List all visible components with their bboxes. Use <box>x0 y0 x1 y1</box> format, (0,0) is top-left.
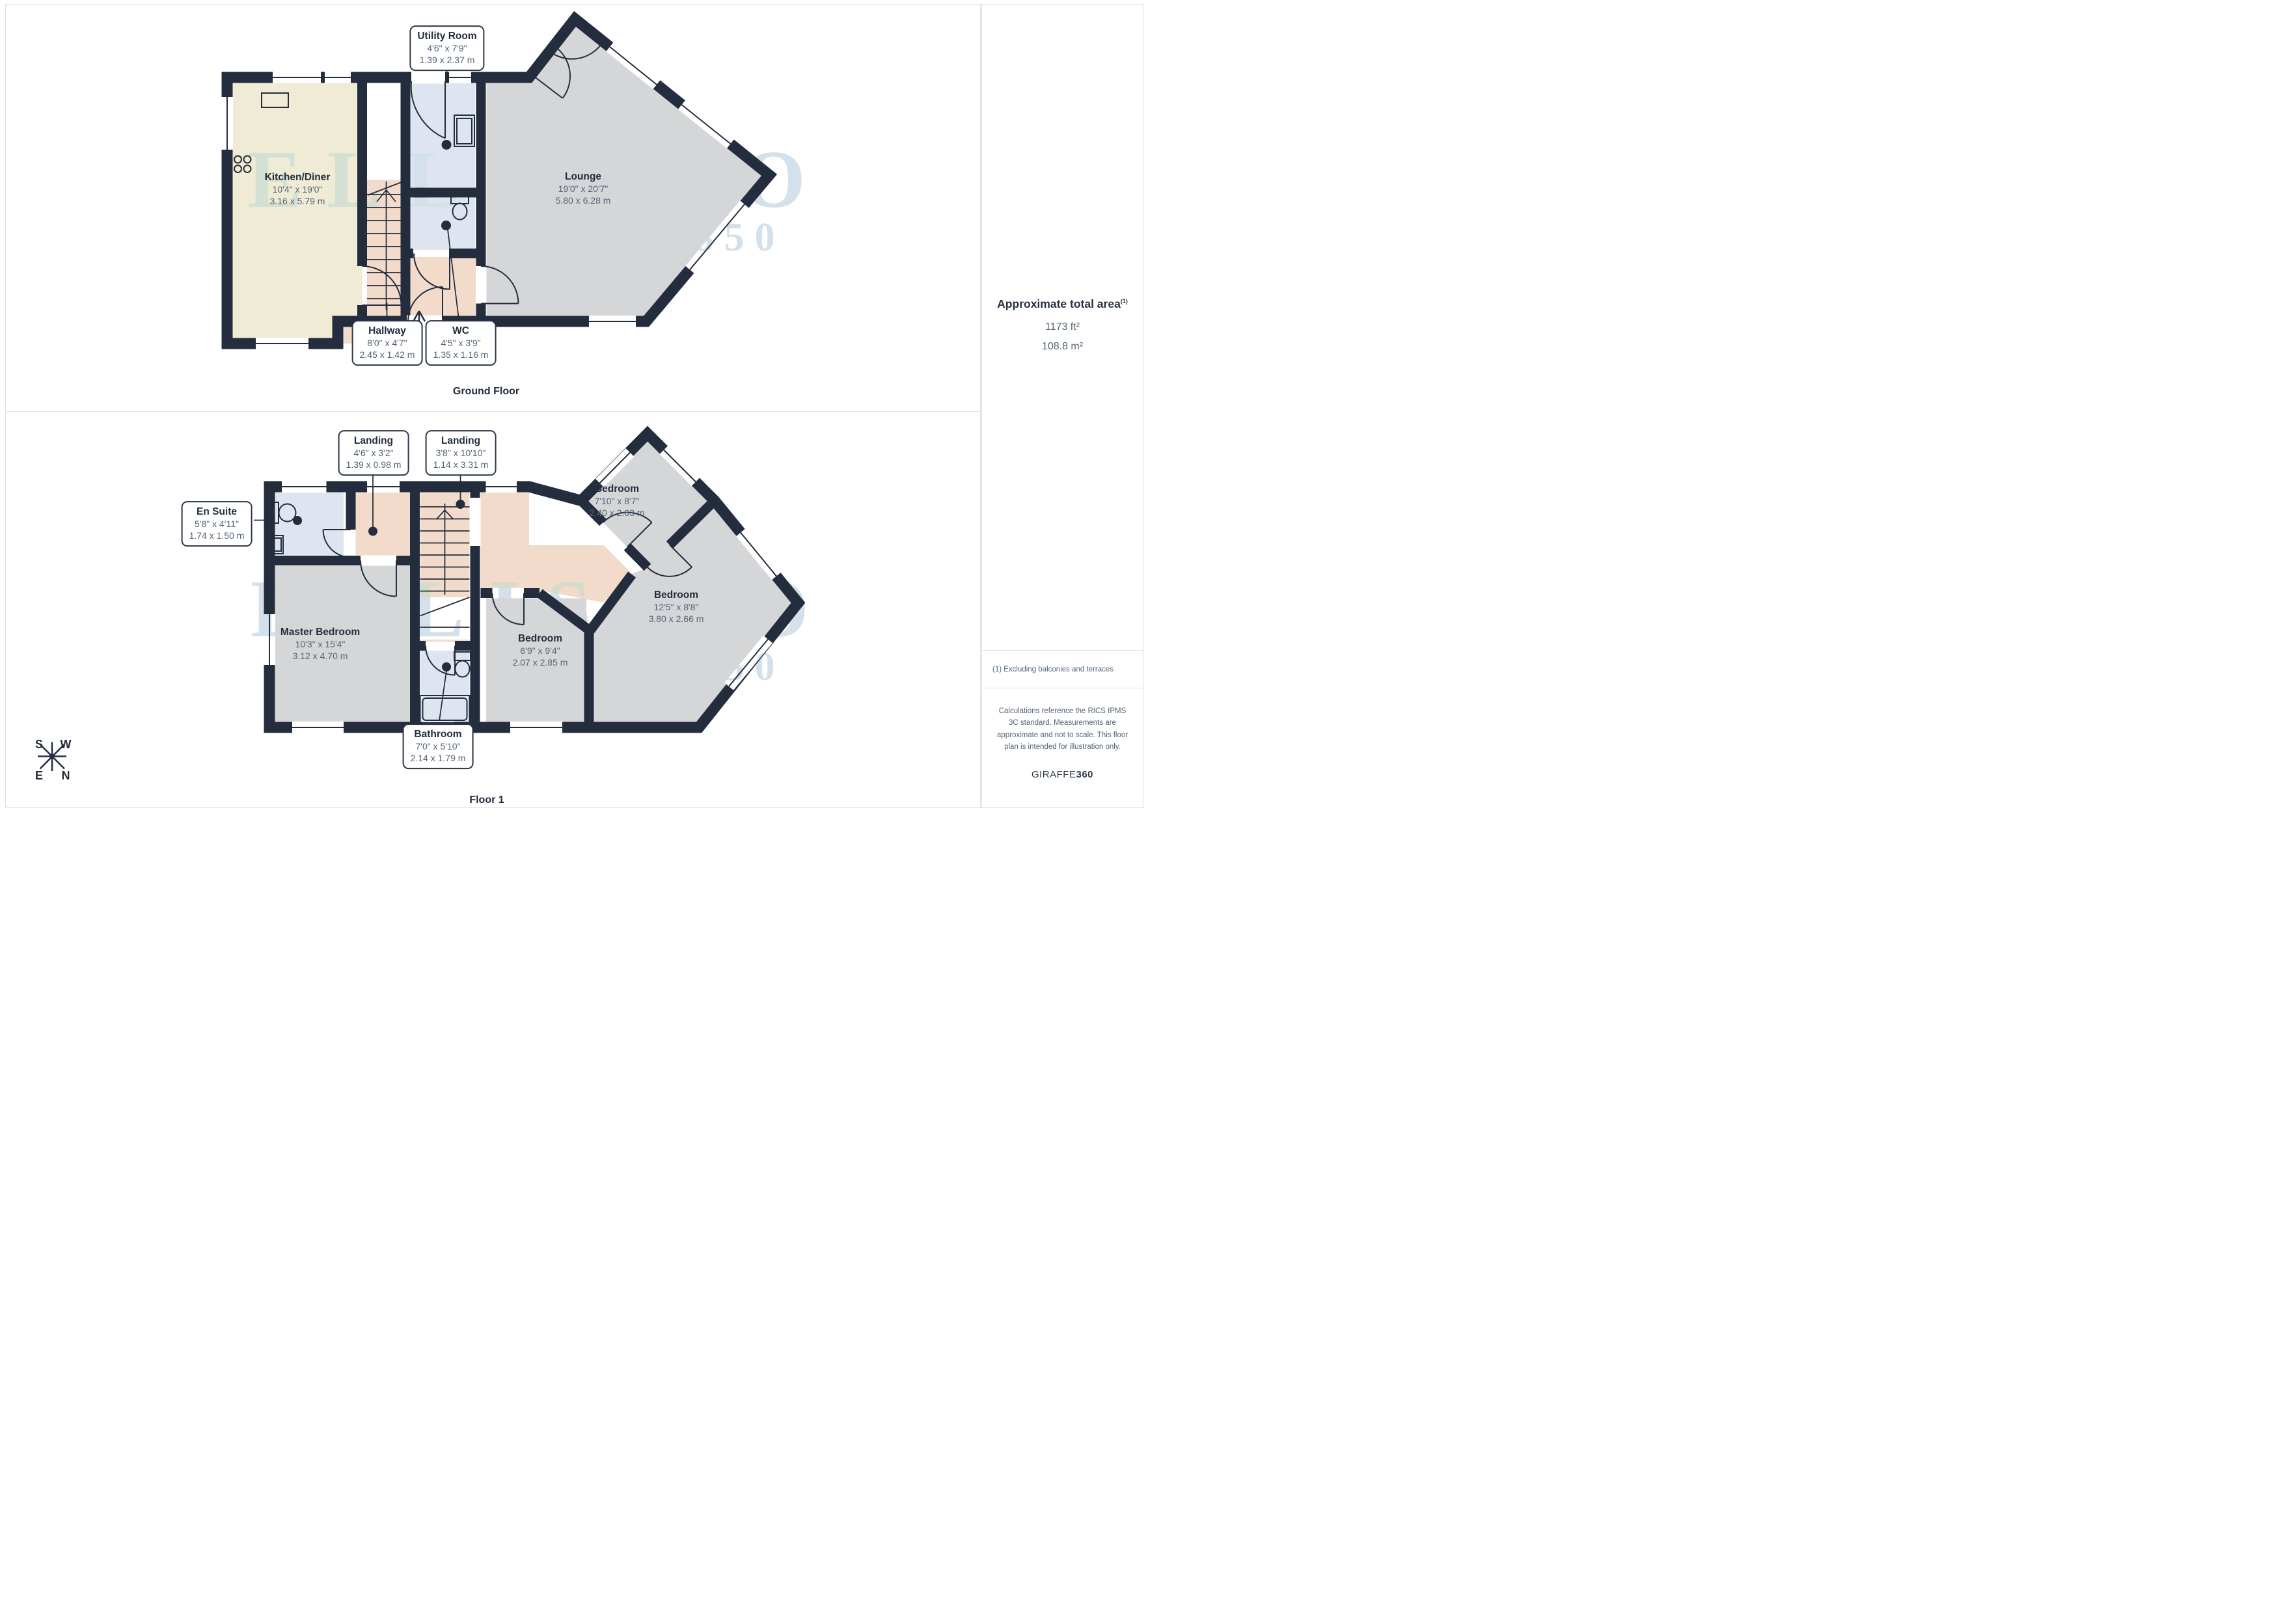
compass-icon: S W E N <box>35 738 72 782</box>
room-label-wc: WC 4'5" x 3'9" 1.35 x 1.16 m <box>426 320 497 366</box>
room-label-bedroom-s: Bedroom 6'9" x 9'4" 2.07 x 2.85 m <box>513 632 568 669</box>
total-area-m: 108.8 m² <box>982 337 1143 357</box>
giraffe360-logo: GIRAFFE360 <box>995 769 1130 780</box>
ground-floor-caption: Ground Floor <box>453 386 519 398</box>
room-label-utility: Utility Room 4'6" x 7'9" 1.39 x 2.37 m <box>409 25 484 71</box>
sidebar-area-box: Approximate total area(1) 1173 ft² 108.8… <box>981 4 1143 651</box>
room-label-landing1: Landing 4'6" x 3'2" 1.39 x 0.98 m <box>338 430 409 476</box>
room-label-master: Master Bedroom 10'3" x 15'4" 3.12 x 4.70… <box>280 626 360 662</box>
room-label-bathroom: Bathroom 7'0" x 5'10" 2.14 x 1.79 m <box>403 724 474 769</box>
room-label-kitchen: Kitchen/Diner 10'4" x 19'0" 3.16 x 5.79 … <box>265 171 331 208</box>
compass-n: N <box>62 769 70 782</box>
room-label-bedroom-e: Bedroom 12'5" x 8'8" 3.80 x 2.66 m <box>649 589 704 625</box>
footnote-marker: (1) <box>1121 298 1128 304</box>
disclaimer-text: Calculations reference the RICS IPMS 3C … <box>995 705 1130 753</box>
room-label-ensuite: En Suite 5'8" x 4'11" 1.74 x 1.50 m <box>182 501 253 547</box>
room-label-bedroom-ne: Bedroom 7'10" x 8'7" 2.40 x 2.63 m <box>590 483 645 519</box>
floor1-caption: Floor 1 <box>469 794 504 806</box>
footnote-text: (1) Excluding balconies and terraces <box>992 666 1114 673</box>
sidebar-disclaimer-box: Calculations reference the RICS IPMS 3C … <box>981 688 1143 808</box>
total-area-ft: 1173 ft² <box>982 318 1143 337</box>
room-label-landing2: Landing 3'8" x 10'10" 1.14 x 3.31 m <box>426 430 497 476</box>
total-area-title: Approximate total area(1) <box>982 297 1143 311</box>
room-label-lounge: Lounge 19'0" x 20'7" 5.80 x 6.28 m <box>556 170 611 207</box>
compass-w: W <box>61 738 72 751</box>
room-label-hallway: Hallway 8'0" x 4'7" 2.45 x 1.42 m <box>352 320 423 366</box>
floor1-floors <box>275 435 799 723</box>
compass-e: E <box>35 769 43 782</box>
compass-s: S <box>35 738 43 751</box>
sidebar-footnote-box: (1) Excluding balconies and terraces <box>981 650 1143 688</box>
